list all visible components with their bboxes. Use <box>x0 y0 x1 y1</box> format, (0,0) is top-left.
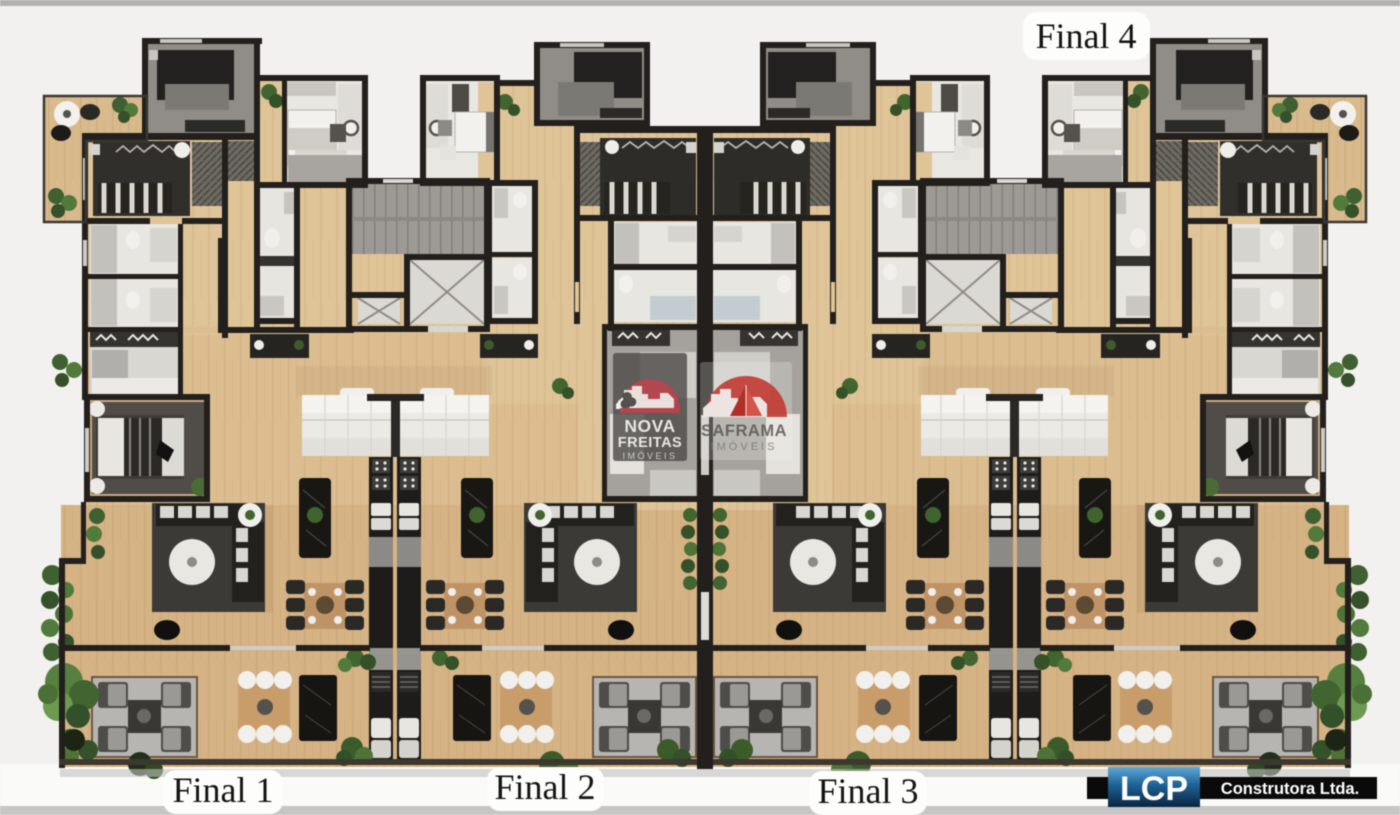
svg-text:LCP: LCP <box>1120 770 1188 808</box>
svg-text:Final 1: Final 1 <box>172 770 273 810</box>
svg-text:FREITAS: FREITAS <box>618 435 682 451</box>
svg-text:Final 2: Final 2 <box>494 767 595 807</box>
svg-text:Final 3: Final 3 <box>817 771 918 811</box>
svg-text:IMÓVEIS: IMÓVEIS <box>711 440 778 453</box>
svg-text:SAFRAMA: SAFRAMA <box>701 422 787 440</box>
svg-text:Construtora Ltda.: Construtora Ltda. <box>1221 780 1359 798</box>
svg-text:Final 4: Final 4 <box>1035 16 1136 56</box>
svg-text:IMÓVEIS: IMÓVEIS <box>622 451 677 461</box>
svg-text:NOVA: NOVA <box>624 416 675 436</box>
